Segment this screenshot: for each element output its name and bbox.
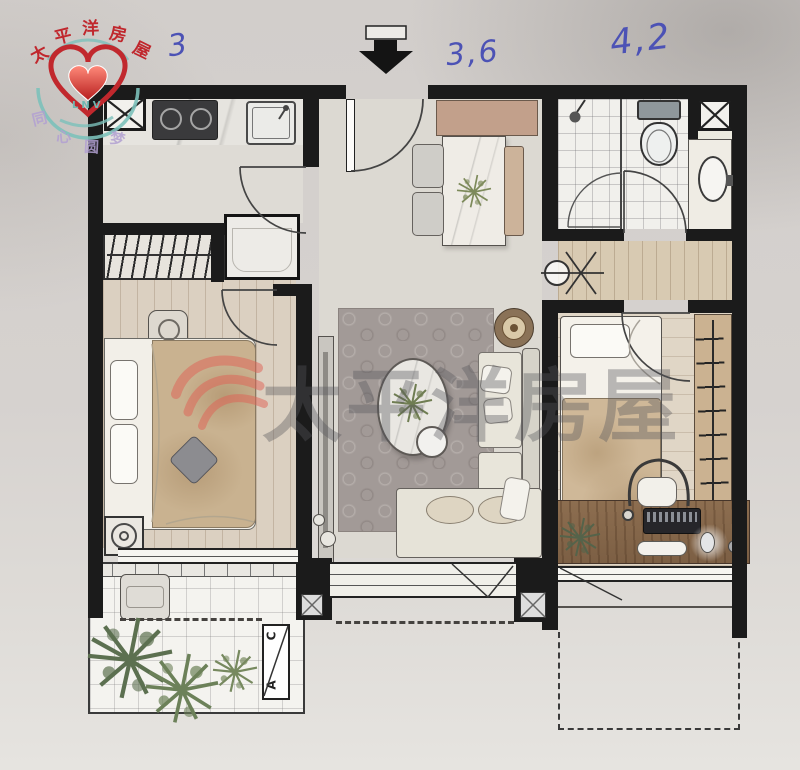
toilet-tank xyxy=(637,100,681,120)
wall-top-right xyxy=(428,85,747,99)
future-balcony-dashed-outline xyxy=(558,632,740,730)
round-stool-center xyxy=(510,324,518,332)
wall-bathroom-bottom-right xyxy=(686,229,732,241)
wall-bedroom2-top-left xyxy=(542,300,624,313)
slogan-char: 圆 xyxy=(83,136,99,158)
notebook xyxy=(637,541,687,556)
kitchen-sink-basin xyxy=(252,107,290,139)
balcony-boundary-dashed xyxy=(336,621,514,624)
laptop-keys xyxy=(647,512,697,522)
dining-bench xyxy=(504,146,524,236)
dining-chair xyxy=(412,144,444,188)
bed-pillow xyxy=(110,424,138,484)
slogan-char: 梦 xyxy=(108,127,127,151)
wall-bedroom2-top-right xyxy=(688,300,732,313)
ac-marker-letter-bottom: A xyxy=(265,680,279,689)
balcony-boundary-dashed xyxy=(120,618,262,621)
living-room-window xyxy=(330,562,516,598)
wall-kitchen-right xyxy=(303,99,319,167)
planter-bench-line xyxy=(126,586,164,608)
pier-hatch-box xyxy=(520,592,546,618)
vanity-basin xyxy=(698,156,728,202)
shower-partition xyxy=(620,99,622,229)
wall-right xyxy=(732,85,747,638)
window-mullion xyxy=(330,574,516,575)
nightstand-lamp xyxy=(158,319,180,341)
wall-bathroom-left xyxy=(542,99,558,241)
wall-bedroom1-door-stub xyxy=(273,284,311,296)
brand-logo: 太 平 洋 房 屋 LNV 同 心 圆 梦 xyxy=(8,4,193,176)
handwritten-annotation: 4,2 xyxy=(608,16,674,63)
wall-fridge-left xyxy=(211,232,224,282)
brand-subtext: LNV xyxy=(72,100,103,111)
pier-hatch-box xyxy=(301,594,323,616)
bedroom1-window xyxy=(118,548,298,564)
slogan-char: 同 xyxy=(30,106,50,130)
dining-chair xyxy=(412,192,444,236)
chaise-cushion xyxy=(426,496,474,524)
mouse xyxy=(700,532,715,553)
window-mullion xyxy=(330,585,516,586)
handwritten-annotation: 3,6 xyxy=(445,34,502,74)
entrance-door-leaf xyxy=(346,99,355,172)
window-mullion xyxy=(118,556,298,557)
ceiling-light-dot xyxy=(119,531,129,541)
bedroom2-window xyxy=(558,566,732,582)
balcony-ledge-line xyxy=(556,606,746,608)
sideboard xyxy=(436,100,538,136)
ac-marker-letter-top: C xyxy=(264,632,278,641)
shaft-box xyxy=(698,99,732,131)
desk-chair-seat xyxy=(637,477,677,507)
wall-bathroom-bottom-left xyxy=(558,229,624,241)
toilet-bowl xyxy=(640,122,678,166)
wall-kitchen-bottom xyxy=(103,223,225,235)
brand-char: 太 xyxy=(25,37,52,67)
corridor-wood-floor xyxy=(558,241,732,300)
brand-char: 洋 xyxy=(82,14,100,40)
brand-char: 平 xyxy=(51,20,74,48)
brand-char: 房 xyxy=(108,19,130,47)
decor-vase xyxy=(313,514,325,526)
bed-pillow xyxy=(110,360,138,420)
desk-lamp xyxy=(622,509,634,521)
refrigerator-front-line xyxy=(232,228,292,272)
bed-blanket xyxy=(152,340,256,528)
wardrobe-closet xyxy=(103,232,225,280)
decor-vase xyxy=(320,531,336,547)
slogan-char: 心 xyxy=(55,125,72,147)
brand-char: 屋 xyxy=(129,34,155,64)
window-mullion xyxy=(558,574,732,575)
stove-burner xyxy=(190,108,212,130)
watermark-text: 太平洋房屋 xyxy=(262,342,682,458)
dining-table xyxy=(442,136,506,246)
wall-bathroom-shaft-side xyxy=(688,99,698,139)
wardrobe-rail xyxy=(107,254,221,256)
floorplan-photo: { "brand": { "chars": ["太","平","洋","房","… xyxy=(0,0,800,770)
